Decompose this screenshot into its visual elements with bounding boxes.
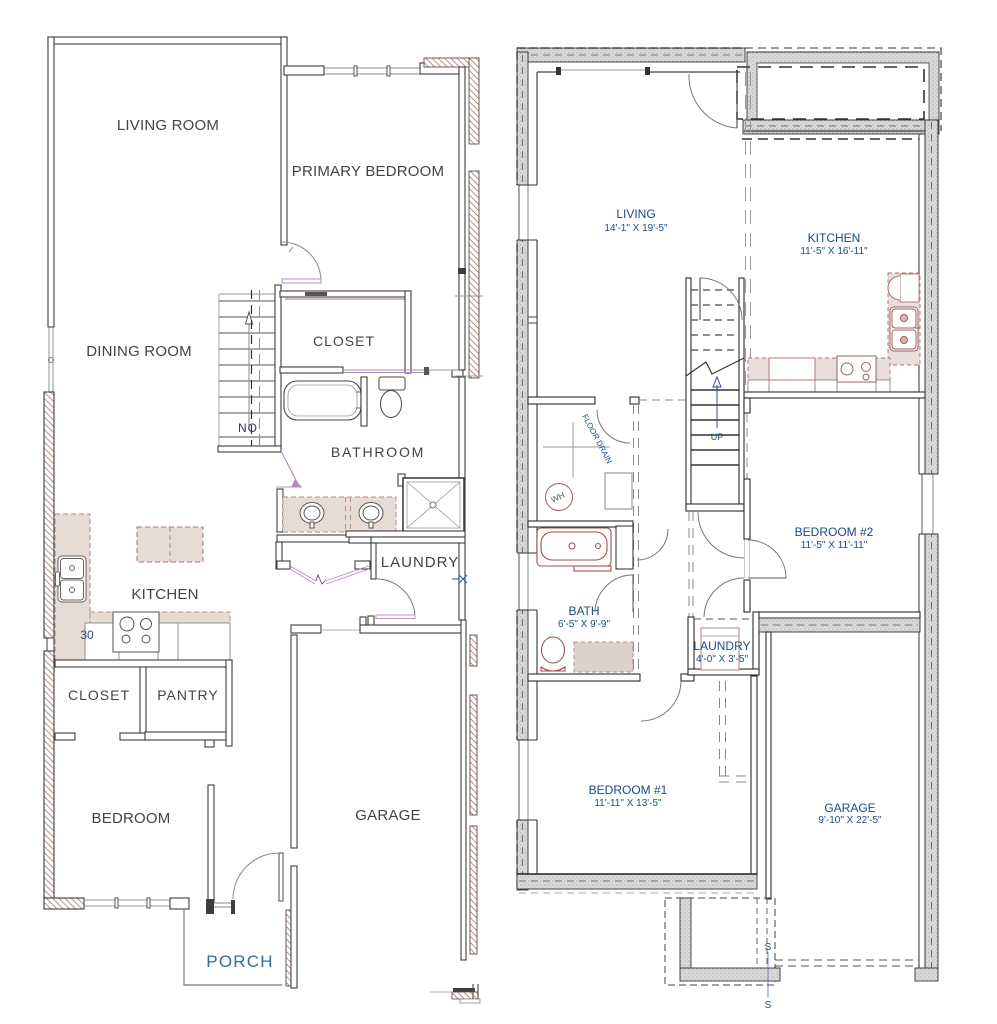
svg-text:BEDROOM #1: BEDROOM #1 xyxy=(589,783,668,797)
svg-text:6'-5" X 9'-9": 6'-5" X 9'-9" xyxy=(558,619,611,630)
svg-text:GARAGE: GARAGE xyxy=(355,807,420,824)
svg-text:14'-1" X 19'-5": 14'-1" X 19'-5" xyxy=(604,223,668,234)
svg-text:PORCH: PORCH xyxy=(206,952,273,971)
svg-text:CLOSET: CLOSET xyxy=(68,687,130,703)
svg-text:4'-0" X 3'-5": 4'-0" X 3'-5" xyxy=(696,654,749,665)
svg-text:DINING ROOM: DINING ROOM xyxy=(86,343,192,360)
svg-text:S: S xyxy=(765,1000,772,1011)
svg-text:LAUNDRY: LAUNDRY xyxy=(381,554,459,571)
svg-text:CLOSET: CLOSET xyxy=(313,333,375,349)
svg-text:S: S xyxy=(765,942,772,953)
svg-text:BEDROOM #2: BEDROOM #2 xyxy=(795,525,874,539)
svg-text:11'-11" X 13'-5": 11'-11" X 13'-5" xyxy=(594,798,662,809)
svg-text:KITCHEN: KITCHEN xyxy=(808,231,861,245)
svg-text:9'-10" X 22'-5": 9'-10" X 22'-5" xyxy=(818,815,882,826)
svg-text:11'-5" X 16'-11": 11'-5" X 16'-11" xyxy=(800,246,868,257)
svg-text:30: 30 xyxy=(80,628,94,642)
svg-text:11'-5" X 11'-11": 11'-5" X 11'-11" xyxy=(801,540,868,551)
svg-text:KITCHEN: KITCHEN xyxy=(131,586,198,603)
svg-text:GARAGE: GARAGE xyxy=(824,801,875,815)
svg-text:LAUNDRY: LAUNDRY xyxy=(693,639,750,653)
svg-text:BATHROOM: BATHROOM xyxy=(331,444,425,460)
svg-text:NO: NO xyxy=(238,421,258,435)
svg-text:PANTRY: PANTRY xyxy=(157,687,219,703)
svg-text:LIVING: LIVING xyxy=(616,207,655,221)
svg-text:UP: UP xyxy=(711,432,724,442)
svg-text:PRIMARY BEDROOM: PRIMARY BEDROOM xyxy=(292,163,444,180)
svg-text:LIVING ROOM: LIVING ROOM xyxy=(117,117,219,134)
svg-text:BEDROOM: BEDROOM xyxy=(92,810,171,827)
